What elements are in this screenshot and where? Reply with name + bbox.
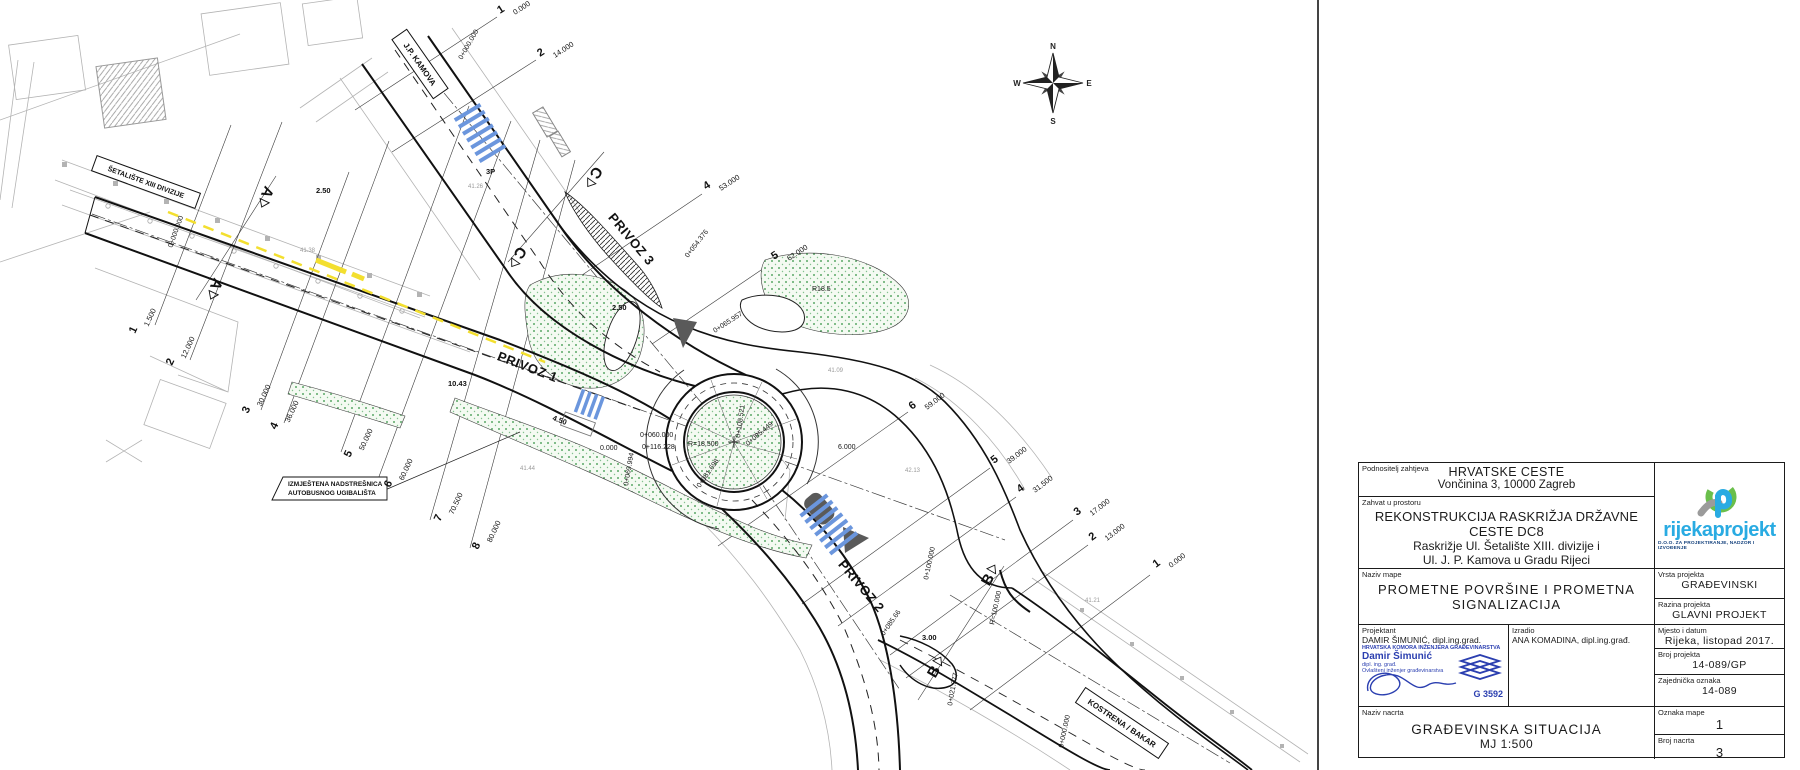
existing-building-hatched: [96, 58, 166, 128]
drawing-number-label: Broj nacrta: [1658, 736, 1781, 745]
svg-text:13.000: 13.000: [1103, 522, 1127, 543]
svg-text:1: 1: [495, 3, 507, 16]
cross-section-lines: [155, 17, 1150, 710]
drawing-title: GRAĐEVINSKA SITUACIJA: [1362, 722, 1651, 738]
svg-text:17.000: 17.000: [1088, 497, 1112, 518]
drawing-number-cell: Broj nacrta 3: [1654, 734, 1784, 759]
section-marker-a1: A: [253, 183, 277, 210]
svg-text:42.13: 42.13: [905, 468, 921, 474]
project-type-label: Vrsta projekta: [1658, 570, 1781, 579]
xs-p3-1: 10.000: [495, 0, 532, 23]
xs-p2-3: 317.000: [1072, 488, 1112, 525]
svg-text:5: 5: [342, 449, 355, 460]
drawing-number-value: 3: [1658, 745, 1781, 759]
road-label-privoz2: PRIVOZ 2: [835, 557, 887, 615]
svg-text:0.000: 0.000: [1167, 551, 1187, 569]
project-level-label: Razina projekta: [1658, 600, 1781, 609]
svg-text:7: 7: [432, 513, 445, 524]
svg-text:0+000.000: 0+000.000: [458, 29, 481, 61]
xs-p1-4: 436.000: [268, 395, 301, 435]
svg-text:4: 4: [268, 420, 282, 431]
company-logo-cell: rijekaprojekt D.O.O. ZA PROJEKTIRANJE, N…: [1654, 463, 1784, 568]
svg-text:ŠETALIŠTE XIII DIVIZIJE: ŠETALIŠTE XIII DIVIZIJE: [107, 164, 186, 200]
xs-p2-1: 10.000: [1151, 542, 1188, 576]
xs-p1-8: 880.000: [470, 515, 503, 555]
existing-cadastral-linework: [0, 0, 1308, 770]
title-block: Podnositelj zahtjeva HRVATSKE CESTE Vonč…: [1358, 462, 1785, 758]
xs-p1-3: 330.000: [240, 379, 273, 419]
svg-text:R=100.000: R=100.000: [989, 590, 1003, 625]
logo-wordmark: rijekaprojekt: [1663, 520, 1775, 540]
project-number-value: 14-089/GP: [1658, 659, 1781, 671]
bus-shelter-hatched: [533, 107, 571, 157]
svg-text:2.50: 2.50: [612, 303, 627, 312]
scope-line1: REKONSTRUKCIJA RASKRIŽJA DRŽAVNE CESTE D…: [1362, 510, 1651, 540]
svg-text:3: 3: [240, 405, 253, 416]
designer-name: DAMIR ŠIMUNIĆ, dipl.ing.grad.: [1362, 635, 1505, 645]
svg-text:6: 6: [907, 399, 919, 412]
crosswalk-privoz1: [574, 389, 605, 420]
folder-line1: PROMETNE POVRŠINE I PROMETNA: [1362, 583, 1651, 598]
svg-text:3P: 3P: [486, 167, 495, 176]
common-code-value: 14-089: [1658, 685, 1781, 697]
svg-text:12.000: 12.000: [179, 335, 197, 360]
drawing-name-label: Naziv nacrta: [1362, 708, 1651, 717]
xs-p2-2: 213.000: [1087, 513, 1127, 550]
svg-text:70.500: 70.500: [447, 491, 465, 516]
svg-text:KOSTRENA / BAKAR: KOSTRENA / BAKAR: [1086, 697, 1158, 749]
rijekaprojekt-logo-icon: [1697, 480, 1743, 520]
svg-text:1.500: 1.500: [142, 307, 158, 328]
svg-text:41.21: 41.21: [1085, 598, 1101, 604]
project-type-value: GRAĐEVINSKI: [1658, 579, 1781, 591]
drafter-label: Izradio: [1512, 626, 1651, 635]
svg-text:2: 2: [164, 357, 177, 368]
svg-text:R=18.500: R=18.500: [688, 441, 719, 448]
svg-text:41.44: 41.44: [520, 466, 536, 472]
drafter-name: ANA KOMADINA, dipl.ing.građ.: [1512, 635, 1651, 645]
common-code-label: Zajednička oznaka: [1658, 676, 1781, 685]
folder-line2: SIGNALIZACIJA: [1362, 598, 1651, 613]
compass-s: S: [1050, 117, 1056, 126]
svg-text:2: 2: [1087, 530, 1099, 543]
compass-e: E: [1086, 79, 1092, 88]
place-date-cell: Mjesto i datum Rijeka, listopad 2017.: [1654, 624, 1784, 648]
applicant-address: Vončinina 3, 10000 Zagreb: [1362, 479, 1651, 492]
section-marker-c1: C: [580, 163, 606, 190]
drawing-scale: MJ 1:500: [1362, 738, 1651, 752]
svg-text:2: 2: [535, 46, 547, 59]
xs-p3-2: 214.000: [535, 30, 575, 66]
svg-text:39.000: 39.000: [1005, 445, 1029, 466]
place-date-value: Rijeka, listopad 2017.: [1658, 635, 1781, 647]
svg-text:IZMJEŠTENA NADSTREŠNICA: IZMJEŠTENA NADSTREŠNICA: [288, 479, 383, 488]
svg-text:31.500: 31.500: [1031, 474, 1055, 495]
folder-name-cell: Naziv mape PROMETNE POVRŠINE I PROMETNA …: [1359, 568, 1654, 624]
xs-p1-1: 11.500: [127, 302, 158, 338]
svg-text:0+054.376: 0+054.376: [684, 229, 710, 260]
svg-text:0+100.000: 0+100.000: [923, 546, 937, 580]
svg-text:30.000: 30.000: [255, 383, 273, 408]
compass-n: N: [1050, 42, 1056, 51]
bus-shelter-note: IZMJEŠTENA NADSTREŠNICA AUTOBUSNOG UGIBA…: [272, 432, 520, 500]
folder-label: Naziv mape: [1362, 570, 1651, 579]
svg-text:C: C: [586, 163, 606, 182]
svg-text:41.38: 41.38: [300, 248, 316, 254]
folder-code-label: Oznaka mape: [1658, 708, 1781, 717]
scope-line2: Raskrižje Ul. Šetalište XIII. divizije i: [1362, 540, 1651, 554]
drawing-canvas: N E S W PRIVOZ 1 PRIVOZ 2 PRIVOZ 3 J.P. …: [0, 0, 1320, 770]
svg-text:41.26: 41.26: [468, 184, 484, 190]
svg-text:0+116.228: 0+116.228: [642, 444, 675, 451]
svg-text:0+065.957: 0+065.957: [712, 311, 744, 335]
svg-text:36.000: 36.000: [283, 399, 301, 424]
xs-p1-6: 660.000: [382, 453, 415, 493]
svg-text:0.000: 0.000: [600, 445, 618, 452]
xs-p1-5: 550.000: [342, 423, 375, 463]
applicant-cell: Podnositelj zahtjeva HRVATSKE CESTE Vonč…: [1359, 463, 1654, 496]
svg-text:14.000: 14.000: [551, 40, 575, 60]
svg-text:53.000: 53.000: [717, 173, 741, 193]
svg-text:0+085.66: 0+085.66: [880, 609, 903, 637]
drawing-name-cell: Naziv nacrta GRAĐEVINSKA SITUACIJA MJ 1:…: [1359, 706, 1654, 759]
applicant-label: Podnositelj zahtjeva: [1362, 464, 1429, 473]
svg-text:0+000.000: 0+000.000: [1058, 714, 1072, 748]
section-marker-c2: C: [504, 243, 530, 270]
project-number-cell: Broj projekta 14-089/GP: [1654, 648, 1784, 674]
svg-text:41.09: 41.09: [828, 368, 844, 374]
svg-text:6.000: 6.000: [838, 444, 856, 451]
svg-text:A: A: [257, 183, 277, 200]
svg-text:AUTOBUSNOG UGIBALIŠTA: AUTOBUSNOG UGIBALIŠTA: [288, 488, 376, 497]
svg-text:R18.5: R18.5: [812, 286, 831, 293]
project-scope-cell: Zahvat u prostoru REKONSTRUKCIJA RASKRIŽ…: [1359, 496, 1654, 568]
xs-p2-4: 431.500: [1015, 465, 1055, 502]
svg-text:0+000.000: 0+000.000: [167, 215, 185, 249]
section-marker-b1: B: [978, 562, 1003, 589]
compass-rose: N E S W: [1013, 42, 1092, 126]
spot-heights: 41.26 41.09 41.38 42.13 41.44 41.21: [300, 184, 1101, 604]
compass-w: W: [1013, 79, 1021, 88]
project-number-label: Broj projekta: [1658, 650, 1781, 659]
xs-p1-7: 770.500: [432, 487, 465, 527]
svg-text:PRIVOZ 2: PRIVOZ 2: [835, 557, 887, 615]
svg-text:0.000: 0.000: [511, 0, 532, 17]
svg-text:C: C: [510, 243, 530, 262]
place-date-label: Mjesto i datum: [1658, 626, 1781, 635]
svg-text:80.000: 80.000: [485, 519, 503, 544]
svg-text:3: 3: [1072, 505, 1084, 518]
designer-cell: Projektant DAMIR ŠIMUNIĆ, dipl.ing.grad.…: [1359, 624, 1508, 706]
svg-text:3.00: 3.00: [922, 633, 937, 642]
street-label-jp-kamova: J.P. KAMOVA: [392, 29, 448, 98]
svg-text:0+060.000: 0+060.000: [640, 432, 673, 439]
scope-line3: Ul. J. P. Kamova u Gradu Rijeci: [1362, 554, 1651, 568]
folder-code-value: 1: [1658, 717, 1781, 732]
designer-label: Projektant: [1362, 626, 1505, 635]
logo-tagline: D.O.O. ZA PROJEKTIRANJE, NADZOR I IZVOĐE…: [1658, 541, 1781, 551]
svg-text:1: 1: [127, 325, 140, 336]
project-level-cell: Razina projekta GLAVNI PROJEKT: [1654, 598, 1784, 624]
plan-sheet: { "title_block": { "podnositelj": {"labe…: [0, 0, 1800, 770]
project-type-cell: Vrsta projekta GRAĐEVINSKI: [1654, 568, 1784, 598]
xs-p3-4: 453.000: [701, 163, 741, 199]
xs-p2-5: 539.000: [989, 436, 1029, 473]
sheet-divider-line: [1317, 0, 1319, 770]
svg-text:2.50: 2.50: [316, 186, 331, 195]
stamp-number: G 3592: [1473, 689, 1503, 699]
common-code-cell: Zajednička oznaka 14-089: [1654, 674, 1784, 706]
svg-text:1: 1: [1151, 557, 1163, 570]
svg-text:8: 8: [470, 541, 483, 552]
svg-text:4: 4: [701, 179, 713, 193]
designer-stamp: HRVATSKA KOMORA INŽENJERA GRAĐEVINARSTVA…: [1362, 645, 1505, 701]
scope-label: Zahvat u prostoru: [1362, 498, 1651, 507]
xs-p1-2: 212.000: [164, 331, 197, 371]
project-level-value: GLAVNI PROJEKT: [1658, 609, 1781, 621]
drafter-cell: Izradio ANA KOMADINA, dipl.ing.građ.: [1508, 624, 1654, 706]
svg-text:50.000: 50.000: [357, 427, 375, 452]
entry-island-privoz3: [673, 318, 697, 348]
folder-code-cell: Oznaka mape 1: [1654, 706, 1784, 734]
stamp-diamonds-icon: [1457, 653, 1503, 683]
svg-text:10.43: 10.43: [448, 379, 467, 388]
signature-icon: [1362, 661, 1462, 701]
